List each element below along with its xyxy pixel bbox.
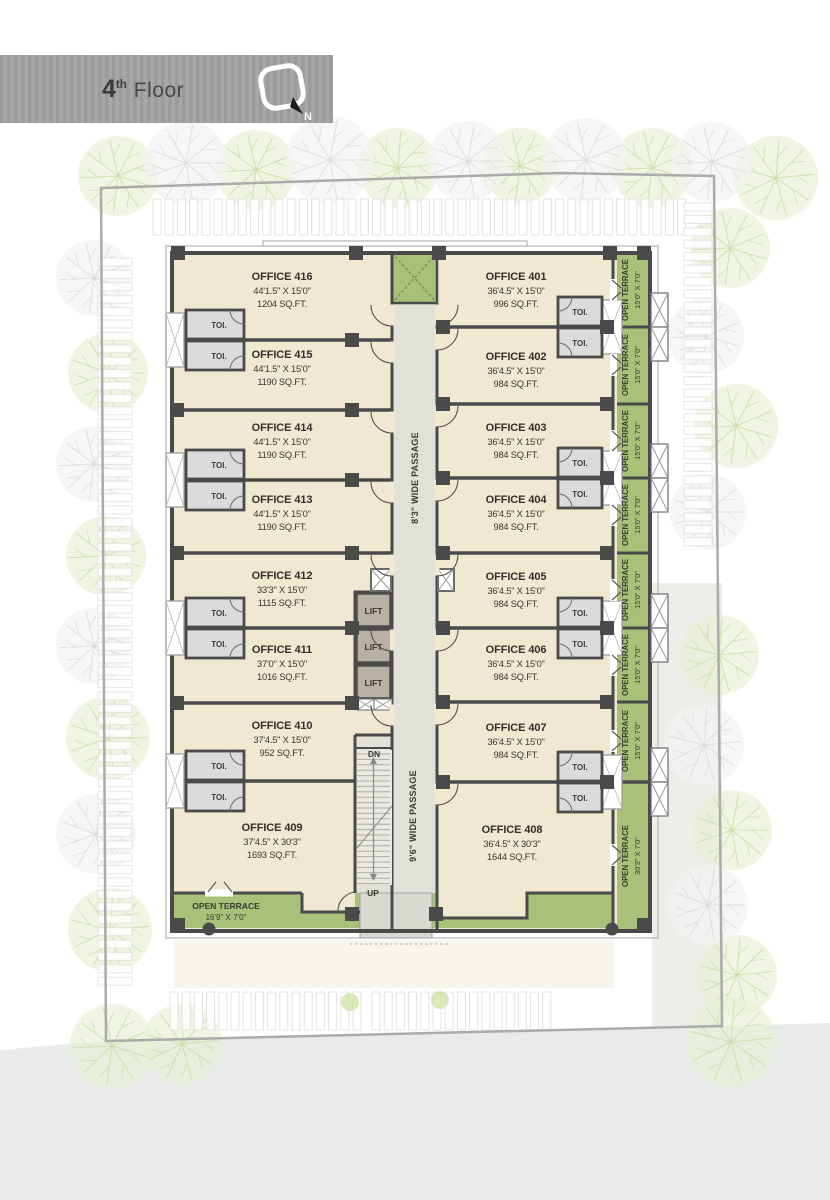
office-label: OFFICE 40236'4.5" X 15'0"984 SQ.FT. <box>486 351 547 389</box>
column <box>349 246 363 260</box>
site-plan-svg: TOI.TOI.TOI.TOI.TOI.TOI.TOI.TOI.TOI.TOI.… <box>0 0 830 1200</box>
toilet-label: TOI. <box>572 490 587 499</box>
terrace-dim: 15'0" X 7'0" <box>633 422 642 460</box>
column <box>436 320 450 334</box>
office-area: 984 SQ.FT. <box>493 450 538 460</box>
office-area: 984 SQ.FT. <box>493 379 538 389</box>
tree-green <box>78 136 158 216</box>
office-label: OFFICE 40336'4.5" X 15'0"984 SQ.FT. <box>486 422 547 460</box>
column <box>600 320 614 334</box>
toilet-label: TOI. <box>572 308 587 317</box>
office-name: OFFICE 401 <box>486 271 547 283</box>
tree-gray <box>428 121 508 201</box>
office-name: OFFICE 416 <box>252 271 313 283</box>
bottom-terrace-label: OPEN TERRACE <box>192 901 260 911</box>
staircase <box>357 750 392 885</box>
column <box>436 695 450 709</box>
office-name: OFFICE 402 <box>486 351 547 363</box>
north-label: N <box>304 111 312 123</box>
terrace-name: OPEN TERRACE <box>621 334 630 396</box>
floorplan-page: TOI.TOI.TOI.TOI.TOI.TOI.TOI.TOI.TOI.TOI.… <box>0 0 830 1200</box>
floor-word: Floor <box>134 79 184 102</box>
column <box>600 775 614 789</box>
shaft-icon <box>374 699 392 710</box>
floor-suffix: th <box>116 79 127 91</box>
toilet-label: TOI. <box>572 459 587 468</box>
column <box>603 246 617 260</box>
lift: LIFT <box>357 594 390 626</box>
office-name: OFFICE 414 <box>252 422 314 434</box>
office-area: 984 SQ.FT. <box>493 750 538 760</box>
column <box>600 621 614 635</box>
column <box>600 471 614 485</box>
terrace-name: OPEN TERRACE <box>621 259 630 321</box>
shaft-icon <box>651 293 668 327</box>
terrace-dim: 30'3" X 7'0" <box>633 837 642 875</box>
office-area: 984 SQ.FT. <box>493 672 538 682</box>
column <box>345 907 359 921</box>
top-green-void <box>392 253 437 303</box>
office-area: 984 SQ.FT. <box>493 599 538 609</box>
office-area: 1693 SQ.FT. <box>247 850 297 860</box>
office-dim: 37'4.5" X 15'0" <box>253 735 310 745</box>
column <box>436 546 450 560</box>
toilet-block: TOI.TOI. <box>166 751 244 811</box>
column <box>170 403 184 417</box>
office-area: 1190 SQ.FT. <box>257 450 306 460</box>
page-title: 4thFloor <box>102 75 184 104</box>
column <box>436 471 450 485</box>
office-area: 996 SQ.FT. <box>493 299 538 309</box>
terrace-name: OPEN TERRACE <box>621 634 630 696</box>
column <box>637 246 651 260</box>
terrace-dim: 15'0" X 7'0" <box>633 346 642 384</box>
office-dim: 44'1.5" X 15'0" <box>253 286 310 296</box>
column <box>637 918 651 932</box>
office-dim: 44'1.5" X 15'0" <box>253 437 310 447</box>
office-name: OFFICE 405 <box>486 571 547 583</box>
site-marker-dot <box>203 923 216 936</box>
office-label: OFFICE 40136'4.5" X 15'0"996 SQ.FT. <box>486 271 547 309</box>
office-dim: 36'4.5" X 15'0" <box>487 366 544 376</box>
office-dim: 36'4.5" X 15'0" <box>487 286 544 296</box>
toilet-label: TOI. <box>211 640 226 649</box>
front-apron <box>174 940 614 988</box>
north-arrow-icon: N <box>253 59 317 123</box>
office-area: 984 SQ.FT. <box>493 522 538 532</box>
office-label: OFFICE 40836'4.5" X 30'3"1644 SQ.FT. <box>482 824 543 862</box>
column <box>600 397 614 411</box>
tree-gray <box>144 121 228 205</box>
passage-label-top: 8'3" WIDE PASSAGE <box>410 432 420 524</box>
terrace-name: OPEN TERRACE <box>621 410 630 472</box>
floor-number: 4 <box>102 75 116 103</box>
office-name: OFFICE 404 <box>486 494 548 506</box>
shrub <box>341 993 359 1011</box>
office-name: OFFICE 415 <box>252 349 313 361</box>
office-name: OFFICE 406 <box>486 644 547 656</box>
toilet-block: TOI.TOI. <box>166 310 244 370</box>
shaft-icon <box>651 594 668 628</box>
tree-green <box>70 1004 154 1088</box>
office-dim: 36'4.5" X 15'0" <box>487 737 544 747</box>
column <box>429 907 443 921</box>
column <box>345 333 359 347</box>
shaft-icon <box>651 748 668 782</box>
column <box>170 696 184 710</box>
office-dim: 36'4.5" X 15'0" <box>487 437 544 447</box>
office-area: 1115 SQ.FT. <box>258 598 307 608</box>
office-dim: 37'4.5" X 30'3" <box>243 837 300 847</box>
office-dim: 36'4.5" X 30'3" <box>483 839 540 849</box>
terrace-dim: 15'0" X 7'0" <box>633 722 642 760</box>
column <box>345 621 359 635</box>
terrace-dim: 15'0" X 7'0" <box>633 496 642 534</box>
office-label: OFFICE 40736'4.5" X 15'0"984 SQ.FT. <box>486 722 547 760</box>
office-label: OFFICE 40536'4.5" X 15'0"984 SQ.FT. <box>486 571 547 609</box>
office-label: OFFICE 41344'1.5" X 15'0"1190 SQ.FT. <box>252 494 313 532</box>
column <box>170 546 184 560</box>
office-dim: 33'3" X 15'0" <box>257 585 307 595</box>
tree-green <box>216 130 296 210</box>
shaft-icon <box>651 478 668 512</box>
office-dim: 36'4.5" X 15'0" <box>487 509 544 519</box>
column <box>600 695 614 709</box>
office-dim: 37'0" X 15'0" <box>257 659 307 669</box>
terrace-name: OPEN TERRACE <box>621 825 630 887</box>
office-dim: 44'1.5" X 15'0" <box>253 364 310 374</box>
toilet-label: TOI. <box>211 352 226 361</box>
office-label: OFFICE 41137'0" X 15'0"1016 SQ.FT. <box>252 644 312 682</box>
office-dim: 36'4.5" X 15'0" <box>487 586 544 596</box>
shaft-icon <box>651 782 668 816</box>
office-label: OFFICE 40937'4.5" X 30'3"1693 SQ.FT. <box>242 822 303 860</box>
terrace-name: OPEN TERRACE <box>621 484 630 546</box>
column <box>432 246 446 260</box>
toilet-label: TOI. <box>211 321 226 330</box>
office-area: 1204 SQ.FT. <box>257 299 307 309</box>
stair-up-label: UP <box>367 888 379 898</box>
site-marker-dot <box>606 923 619 936</box>
toilet-label: TOI. <box>572 763 587 772</box>
shaft-icon <box>651 327 668 361</box>
column <box>345 473 359 487</box>
column <box>345 546 359 560</box>
floor-banner: 4thFloor N <box>0 55 333 123</box>
stair-down-label: DN <box>368 749 380 759</box>
terrace-name: OPEN TERRACE <box>621 710 630 772</box>
lifts-layer: LIFTLIFTLIFT <box>357 594 390 698</box>
terrace-name: OPEN TERRACE <box>621 559 630 621</box>
toilet-label: TOI. <box>572 640 587 649</box>
lift: LIFT <box>357 666 390 698</box>
toilet-label: TOI. <box>572 794 587 803</box>
tree-green <box>686 997 776 1087</box>
column <box>436 621 450 635</box>
toilet-label: TOI. <box>572 609 587 618</box>
toilet-label: TOI. <box>211 793 226 802</box>
toilet-label: TOI. <box>211 461 226 470</box>
column <box>345 403 359 417</box>
office-area: 1016 SQ.FT. <box>257 672 307 682</box>
lift: LIFT <box>357 630 390 662</box>
toilet-label: TOI. <box>572 339 587 348</box>
column <box>600 546 614 560</box>
tree-gray <box>672 122 752 202</box>
toilet-block: TOI.TOI. <box>166 450 244 510</box>
office-name: OFFICE 413 <box>252 494 313 506</box>
office-name: OFFICE 403 <box>486 422 547 434</box>
office-name: OFFICE 409 <box>242 822 303 834</box>
shrub <box>431 991 449 1009</box>
terrace-dim: 15'0" X 7'0" <box>633 571 642 609</box>
office-area: 1644 SQ.FT. <box>487 852 537 862</box>
column <box>436 775 450 789</box>
office-name: OFFICE 412 <box>252 570 313 582</box>
toilet-block: TOI.TOI. <box>166 598 244 658</box>
office-label: OFFICE 40436'4.5" X 15'0"984 SQ.FT. <box>486 494 548 532</box>
tree-gray <box>664 705 744 785</box>
toilet-label: TOI. <box>211 762 226 771</box>
tree-gray <box>544 118 628 202</box>
office-label: OFFICE 40636'4.5" X 15'0"984 SQ.FT. <box>486 644 547 682</box>
tree-gray <box>668 865 748 945</box>
office-label: OFFICE 41544'1.5" X 15'0"1190 SQ.FT. <box>252 349 313 387</box>
bottom-terrace-dim: 16'9" X 7'0" <box>206 913 247 922</box>
terrace-dim: 15'0" X 7'0" <box>633 271 642 309</box>
office-label: OFFICE 41644'1.5" X 15'0"1204 SQ.FT. <box>252 271 313 309</box>
tree-gray <box>286 116 374 204</box>
column <box>345 696 359 710</box>
toilet-label: TOI. <box>211 609 226 618</box>
office-name: OFFICE 411 <box>252 644 312 656</box>
office-area: 1190 SQ.FT. <box>257 377 306 387</box>
office-dim: 36'4.5" X 15'0" <box>487 659 544 669</box>
office-dim: 44'1.5" X 15'0" <box>253 509 310 519</box>
office-name: OFFICE 407 <box>486 722 547 734</box>
office-name: OFFICE 408 <box>482 824 543 836</box>
column <box>436 397 450 411</box>
passage-label-bottom: 9'6" WIDE PASSAGE <box>408 770 418 862</box>
column <box>171 246 185 260</box>
office-label: OFFICE 41233'3" X 15'0"1115 SQ.FT. <box>252 570 313 608</box>
toilet-label: TOI. <box>211 492 226 501</box>
lift-label: LIFT <box>365 606 384 616</box>
office-label: OFFICE 41037'4.5" X 15'0"952 SQ.FT. <box>252 720 313 758</box>
office-name: OFFICE 410 <box>252 720 313 732</box>
tree-green <box>692 790 772 870</box>
office-area: 952 SQ.FT. <box>259 748 304 758</box>
shaft-icon <box>651 444 668 478</box>
terrace-dim: 15'0" X 7'0" <box>633 646 642 684</box>
office-label: OFFICE 41444'1.5" X 15'0"1190 SQ.FT. <box>252 422 314 460</box>
shaft-icon <box>438 569 454 591</box>
column <box>171 918 185 932</box>
lift-label: LIFT <box>365 678 384 688</box>
office-area: 1190 SQ.FT. <box>257 522 306 532</box>
shaft-icon <box>651 628 668 662</box>
